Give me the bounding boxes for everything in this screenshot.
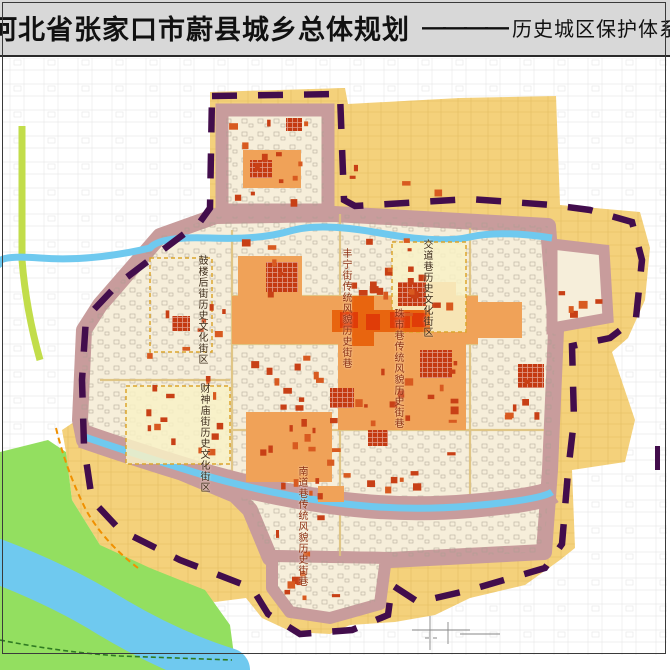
label-zhushi-lane-street: 珠市巷传统风貌历史街巷 — [392, 308, 402, 429]
title-bar: 河北省张家口市蔚县城乡总体规划 ———— 历史城区保护体系规划图 — [0, 0, 670, 57]
label-jiaodao-lane-district: 交道巷历史文化街区 — [421, 239, 431, 338]
map-title: 河北省张家口市蔚县城乡总体规划 — [0, 8, 410, 47]
label-caishenmiao-street-district: 财神庙街历史文化街区 — [198, 383, 208, 493]
boundary-tick-right-edge — [655, 446, 660, 470]
label-nandao-lane-street: 南道巷传统风貌历史街巷 — [296, 466, 306, 587]
planning-map: 鼓楼后街历史文化街区 丰宁街传统风貌历史街巷 交道巷历史文化街区 珠市巷传统风貌… — [0, 0, 670, 670]
title-separator-dash: ———— — [422, 14, 506, 42]
map-canvas — [0, 0, 670, 670]
city-wall-east-annex — [552, 244, 608, 328]
map-subtitle: 历史城区保护体系规划图 — [512, 13, 670, 42]
label-fengning-street: 丰宁街传统风貌历史街巷 — [340, 248, 350, 369]
label-gulou-houjie-district: 鼓楼后街历史文化街区 — [196, 255, 206, 365]
